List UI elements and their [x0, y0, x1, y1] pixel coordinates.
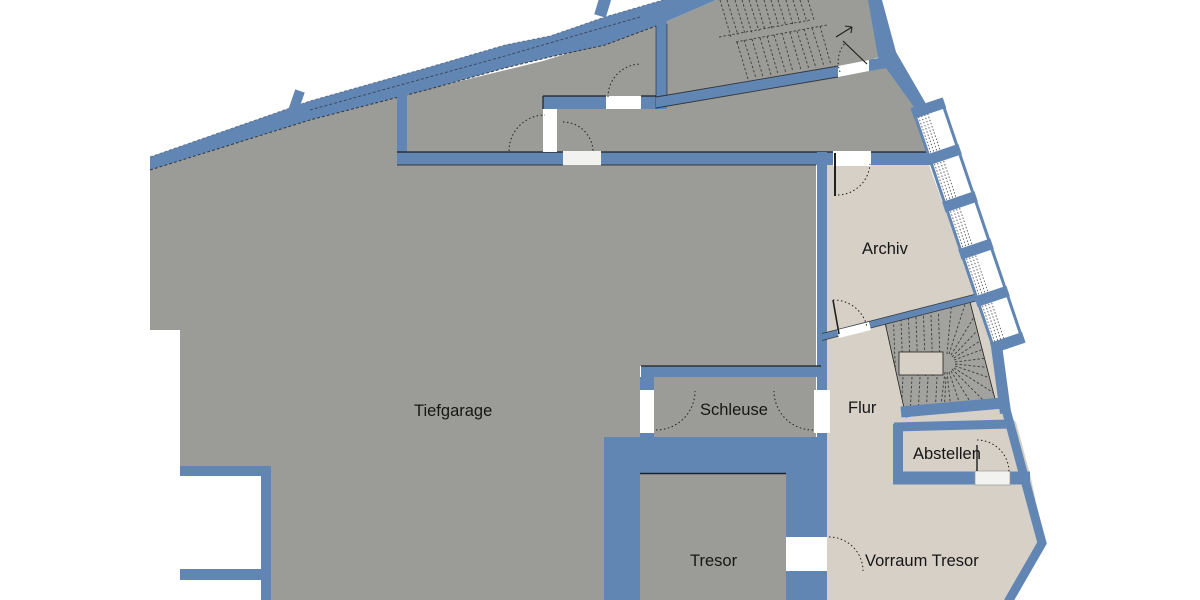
svg-text:Archiv: Archiv: [862, 240, 909, 258]
svg-text:Flur: Flur: [848, 399, 877, 417]
svg-text:Tresor: Tresor: [690, 552, 738, 570]
svg-text:Vorraum Tresor: Vorraum Tresor: [865, 552, 979, 570]
svg-text:Tiefgarage: Tiefgarage: [414, 402, 492, 420]
svg-text:Abstellen: Abstellen: [913, 445, 981, 463]
svg-text:Schleuse: Schleuse: [700, 401, 768, 419]
